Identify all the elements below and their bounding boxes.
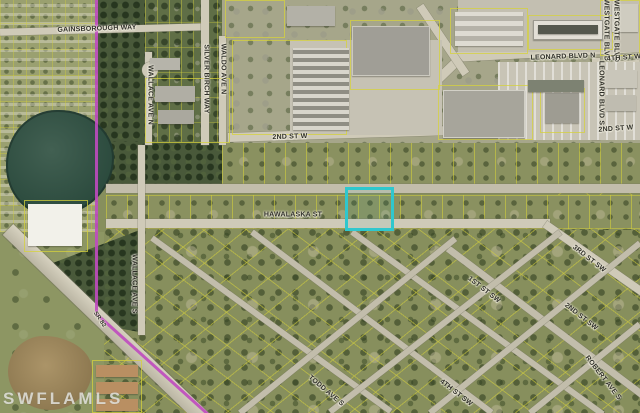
warehouse-large [443,90,525,138]
building [612,4,638,32]
warehouse [545,93,579,123]
storage-rows [293,48,349,130]
building [150,58,180,70]
white-building [28,204,82,246]
dark-roof-building [528,80,584,92]
building [155,86,195,102]
building [158,110,194,124]
lot-band-north [222,142,640,185]
forest-strip [98,0,145,148]
warehouse [287,6,335,26]
mls-watermark: SWFLAMLS [3,389,123,409]
boundary-line-vertical [95,0,98,316]
road-hawalaska-st [106,219,550,228]
building [606,95,636,111]
highlighted-parcel[interactable] [345,187,394,231]
forest-patch-mid [106,142,222,186]
warehouse [352,26,430,76]
building [603,70,637,88]
road-wallace-ave-s [138,145,145,335]
townhome-row [96,365,138,377]
truck-row [538,25,598,34]
aerial-map[interactable]: GAINSBOROUGH WAY SILVER BIRCH WAY WALLAC… [0,0,640,413]
parcel-outline [225,0,285,38]
warehouse-rows [455,12,523,46]
